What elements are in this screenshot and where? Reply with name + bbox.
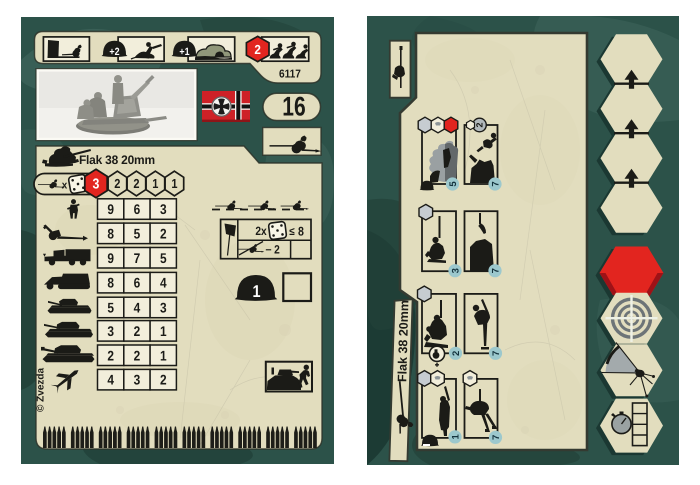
svg-text:Flak 38 20mm: Flak 38 20mm xyxy=(395,300,411,382)
svg-text:6: 6 xyxy=(134,201,141,217)
svg-text:7: 7 xyxy=(491,435,502,440)
svg-text:7: 7 xyxy=(134,250,141,266)
svg-text:–: – xyxy=(265,242,271,256)
svg-text:3: 3 xyxy=(93,177,100,193)
svg-text:x: x xyxy=(62,180,68,192)
svg-text:2x: 2x xyxy=(255,224,267,238)
svg-text:2: 2 xyxy=(114,176,120,191)
svg-text:1: 1 xyxy=(253,282,261,301)
svg-text:5: 5 xyxy=(134,225,141,241)
svg-text:1: 1 xyxy=(450,434,461,440)
svg-text:2: 2 xyxy=(274,243,280,257)
svg-text:Flak 38 20mm: Flak 38 20mm xyxy=(79,153,155,167)
svg-text:9: 9 xyxy=(107,201,114,217)
svg-text:2: 2 xyxy=(160,225,167,241)
svg-text:4: 4 xyxy=(134,300,141,316)
svg-text:3: 3 xyxy=(160,201,167,217)
svg-text:1: 1 xyxy=(171,176,177,191)
svg-text:3: 3 xyxy=(134,372,141,388)
svg-text:1: 1 xyxy=(160,323,167,339)
svg-text:8: 8 xyxy=(107,225,114,241)
svg-text:2: 2 xyxy=(451,351,462,356)
svg-text:+2: +2 xyxy=(109,46,119,58)
svg-text:6117: 6117 xyxy=(279,69,301,81)
svg-text:7: 7 xyxy=(490,181,501,186)
svg-text:8: 8 xyxy=(298,225,304,239)
svg-text:5: 5 xyxy=(448,181,459,187)
svg-text:2: 2 xyxy=(134,347,141,363)
svg-text:2: 2 xyxy=(254,42,261,57)
svg-text:2: 2 xyxy=(134,323,141,339)
svg-text:4: 4 xyxy=(107,372,114,388)
svg-text:2: 2 xyxy=(133,176,139,191)
svg-text:4: 4 xyxy=(160,275,167,291)
svg-text:3: 3 xyxy=(107,323,114,339)
svg-text:7: 7 xyxy=(490,268,501,273)
svg-text:2: 2 xyxy=(107,347,114,363)
svg-text:6: 6 xyxy=(134,275,141,291)
svg-text:7: 7 xyxy=(491,351,502,356)
svg-text:3: 3 xyxy=(160,300,167,316)
svg-text:8: 8 xyxy=(107,275,114,291)
svg-text:© Zvezda: © Zvezda xyxy=(36,368,47,412)
svg-text:2: 2 xyxy=(475,122,485,127)
svg-text:1: 1 xyxy=(160,347,167,363)
svg-text:5: 5 xyxy=(160,250,167,266)
svg-text:+1: +1 xyxy=(179,46,189,58)
svg-text:1: 1 xyxy=(152,176,158,191)
svg-text:3: 3 xyxy=(450,268,461,273)
svg-text:5: 5 xyxy=(107,300,114,316)
svg-text:16: 16 xyxy=(282,92,305,122)
svg-text:9: 9 xyxy=(107,250,114,266)
svg-text:≤: ≤ xyxy=(289,226,294,238)
svg-text:2: 2 xyxy=(160,372,167,388)
